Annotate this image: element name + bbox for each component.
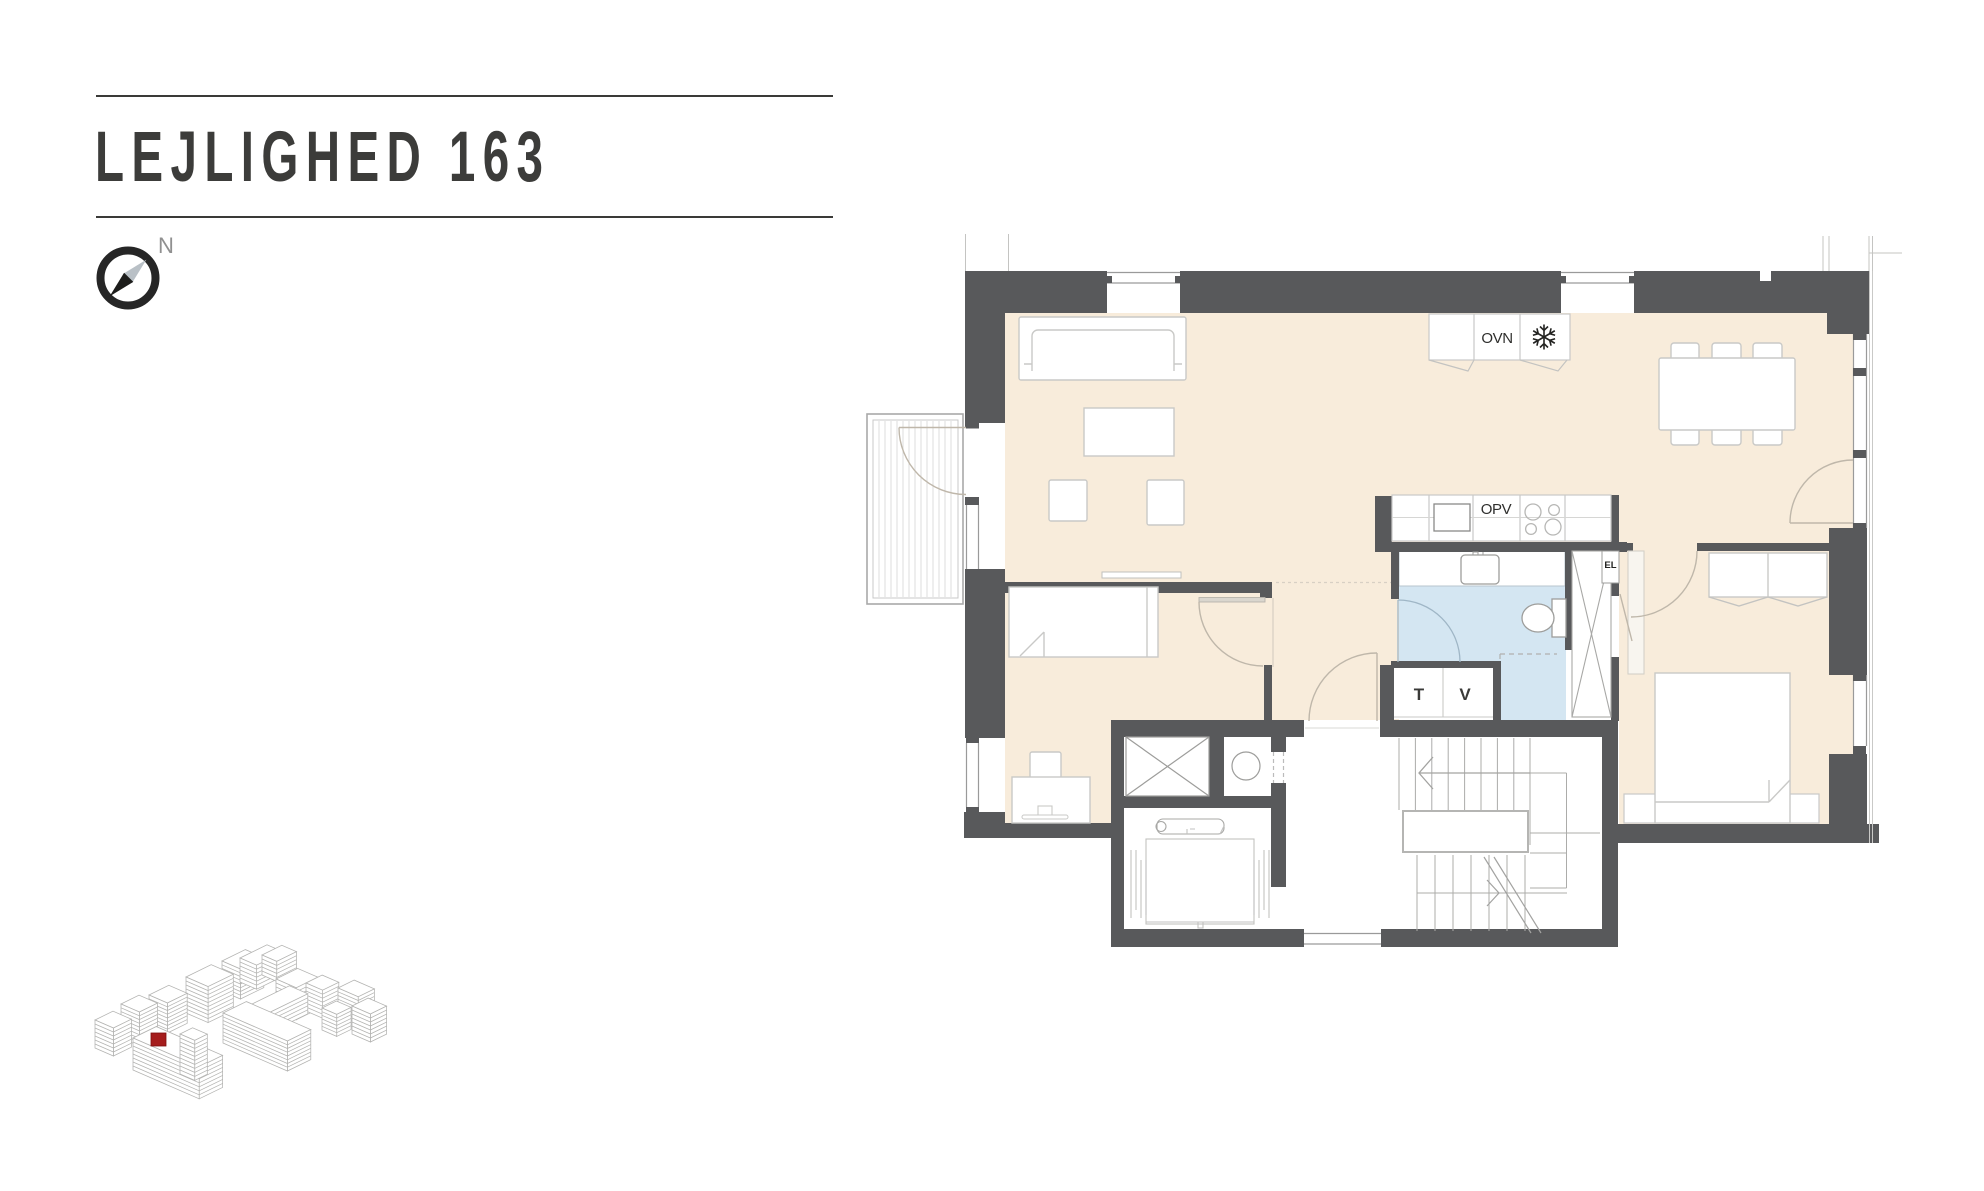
svg-text:V: V bbox=[1459, 685, 1471, 704]
svg-text:EL: EL bbox=[1604, 560, 1616, 571]
svg-text:T: T bbox=[1414, 685, 1425, 704]
svg-text:OVN: OVN bbox=[1481, 330, 1512, 347]
svg-text:OPV: OPV bbox=[1481, 501, 1512, 518]
